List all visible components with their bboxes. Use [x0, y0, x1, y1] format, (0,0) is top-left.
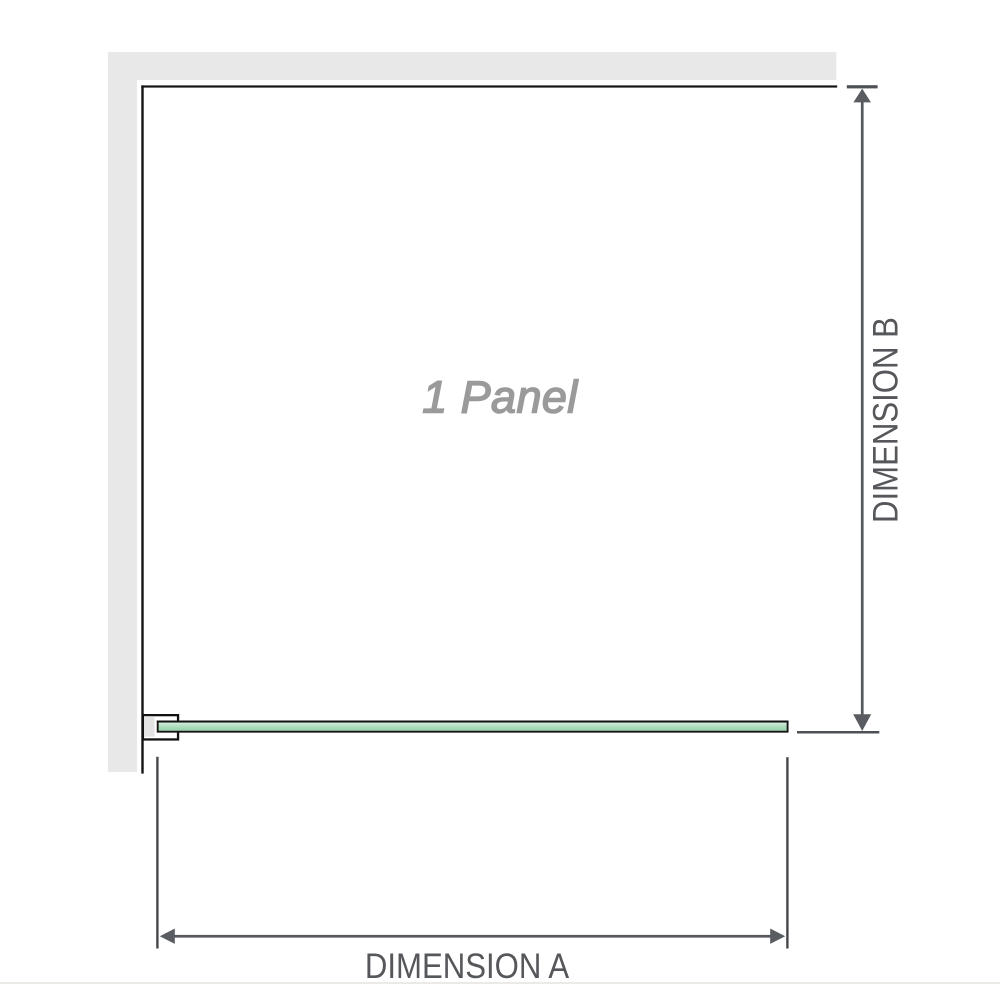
- svg-text:DIMENSION A: DIMENSION A: [365, 947, 570, 986]
- svg-text:1 Panel: 1 Panel: [422, 372, 579, 423]
- svg-text:DIMENSION B: DIMENSION B: [867, 317, 906, 523]
